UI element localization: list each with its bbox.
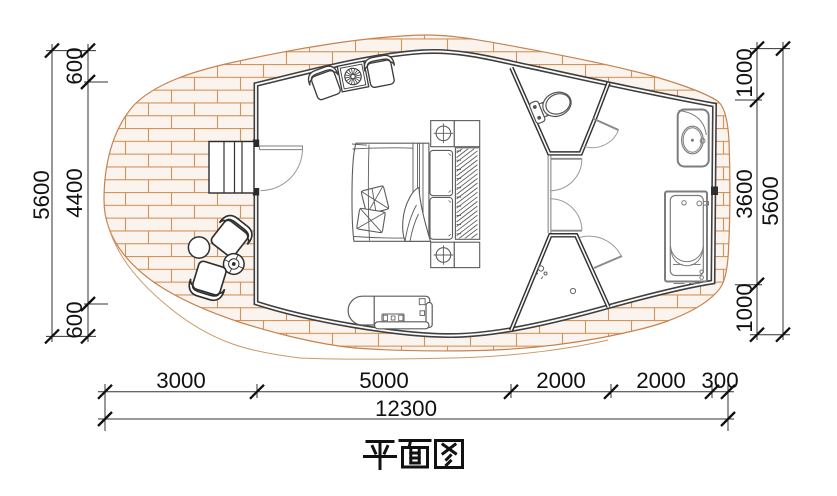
svg-text:600: 600 [62, 47, 87, 84]
svg-text:1000: 1000 [732, 48, 757, 98]
svg-text:3600: 3600 [732, 169, 757, 219]
svg-text:5600: 5600 [29, 170, 54, 220]
svg-text:5600: 5600 [758, 176, 783, 226]
svg-text:3000: 3000 [156, 368, 206, 393]
svg-text:2000: 2000 [536, 368, 586, 393]
svg-text:4400: 4400 [62, 168, 87, 218]
svg-text:5000: 5000 [359, 368, 409, 393]
svg-text:1000: 1000 [732, 283, 757, 333]
svg-text:2000: 2000 [636, 368, 686, 393]
svg-text:12300: 12300 [375, 396, 437, 421]
svg-text:300: 300 [701, 368, 738, 393]
svg-text:600: 600 [62, 301, 87, 338]
